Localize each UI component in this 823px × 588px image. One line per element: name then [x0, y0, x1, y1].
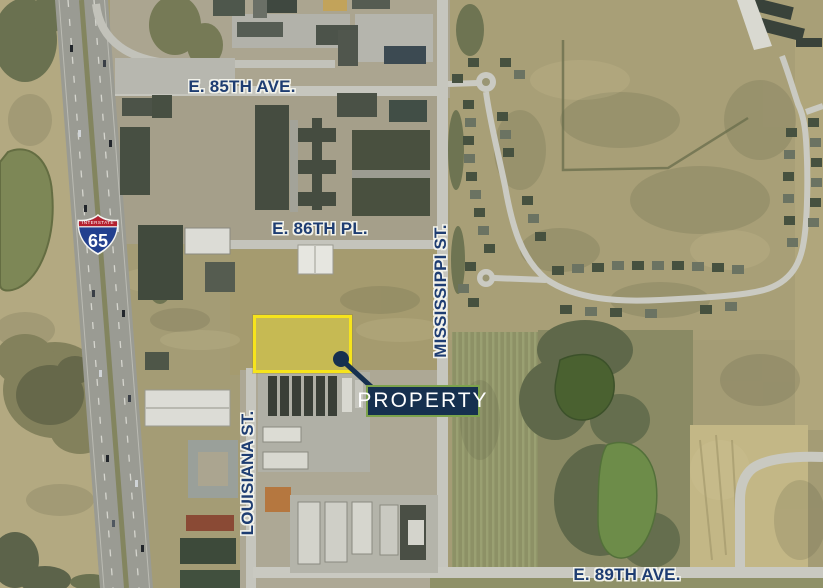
plowed-field [452, 332, 538, 568]
street-label-e-85th-ave: E. 85TH AVE. [188, 77, 295, 97]
property-callout-label: PROPERTY [357, 389, 488, 413]
street-label-louisiana-st: LOUISIANA ST. [238, 411, 258, 536]
street-label-e-89th-ave: E. 89TH AVE. [573, 565, 680, 585]
street-label-e-86th-pl: E. 86TH PL. [272, 219, 368, 239]
property-callout: PROPERTY [366, 385, 480, 417]
aerial-imagery [0, 0, 823, 588]
property-boundary-highlight [253, 315, 352, 373]
e-86th-pl-road [230, 240, 447, 249]
street-label-mississippi-st: MISSISSIPPI ST. [431, 224, 451, 357]
aerial-map-canvas: E. 85TH AVE. E. 86TH PL. MISSISSIPPI ST.… [0, 0, 823, 588]
